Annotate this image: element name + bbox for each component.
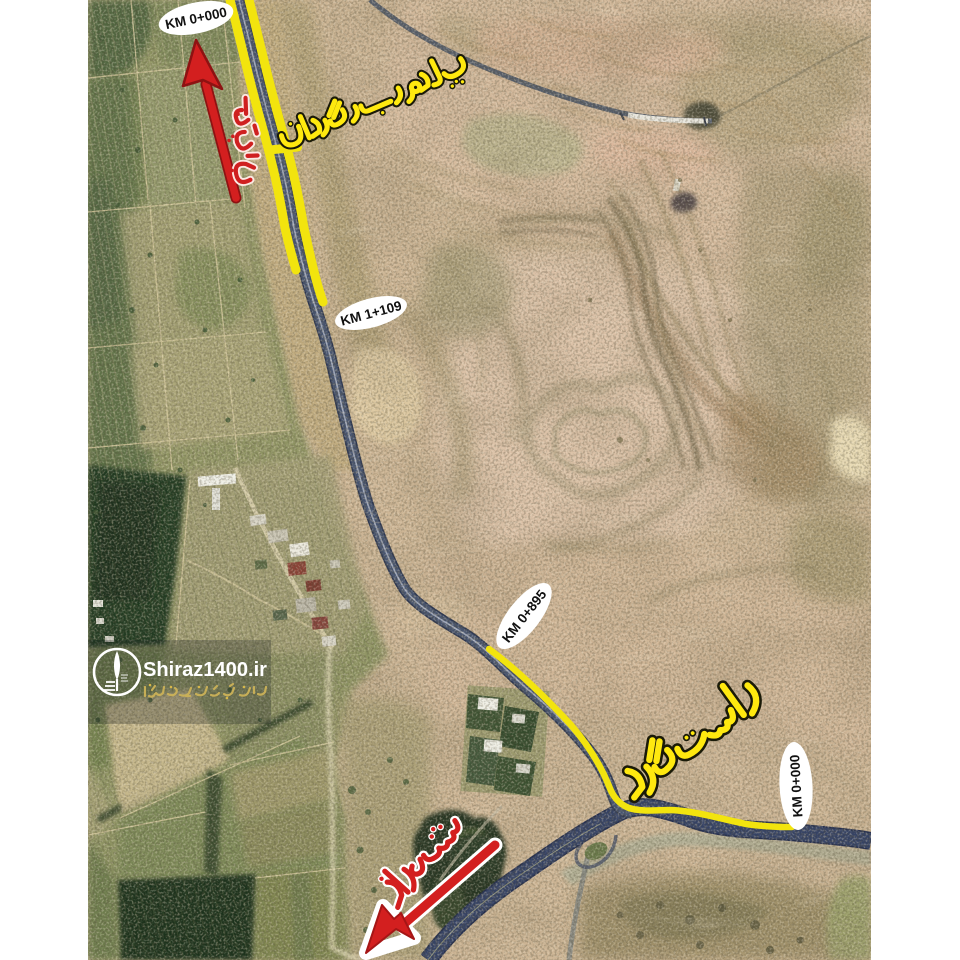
svg-text:Shiraz1400.ir: Shiraz1400.ir [143,659,267,681]
